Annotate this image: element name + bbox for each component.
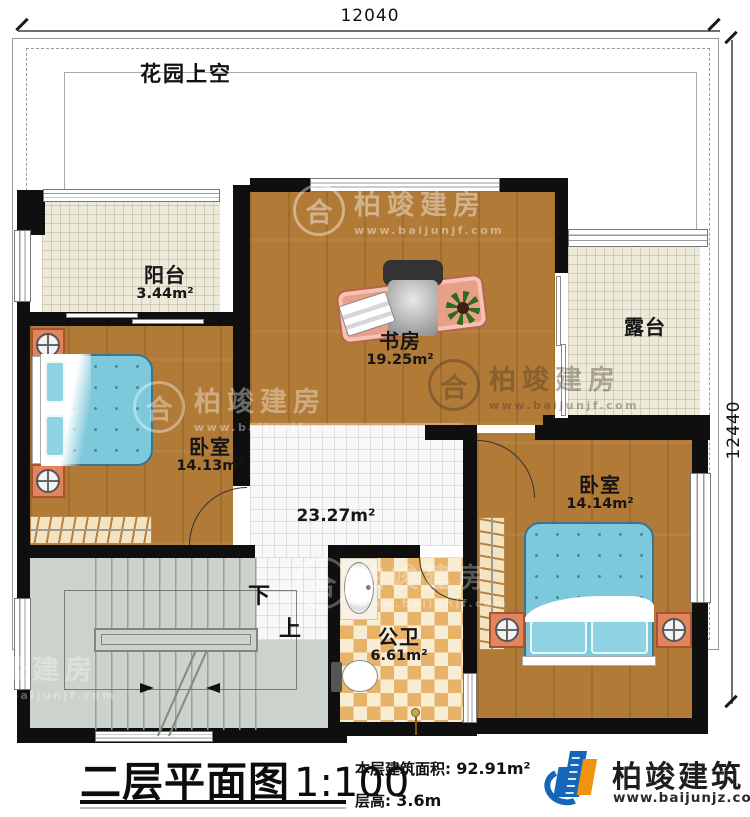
lamp-icon (36, 469, 60, 493)
room-name: 卧室 (535, 474, 665, 496)
lamp-icon (662, 618, 686, 642)
room-area: 14.13m² (150, 458, 270, 474)
floor-height-value: 3.6m (396, 791, 441, 810)
floor-height-label: 层高: (355, 792, 391, 810)
wall-bedroom-right-south (463, 718, 708, 734)
nightstand (489, 612, 525, 648)
bedroom-left-label: 卧室 14.13m² (150, 436, 270, 475)
nightstand (656, 612, 692, 648)
hall-floor (250, 425, 463, 558)
balcony-west-window (14, 230, 31, 302)
wall-bedroom-right-north (535, 425, 710, 440)
desk-chair-seat (388, 280, 438, 336)
faucet-dot (366, 585, 371, 590)
room-area: 14.14m² (535, 496, 665, 512)
nightstand (31, 464, 65, 498)
balcony-label: 阳台 3.44m² (95, 264, 235, 303)
wall-bathroom-south (328, 722, 477, 736)
room-name: 卧室 (150, 436, 270, 458)
floor-drain-stem (415, 717, 417, 735)
title-underline (80, 800, 346, 804)
room-area: 23.27m² (266, 507, 406, 526)
brand-logo-icon (548, 747, 606, 809)
pillow (45, 361, 65, 403)
wall-bedroom-right-east-top (692, 425, 708, 473)
wall-bedroom-right-east-bottom (692, 603, 708, 733)
wardrobe (30, 516, 152, 544)
pillow (530, 620, 587, 654)
wall-study-east (555, 185, 568, 273)
wall-balcony-nw (17, 190, 45, 235)
dimension-line-right (731, 40, 733, 704)
floor-drain-icon (411, 708, 420, 717)
plant-pot (457, 302, 469, 314)
pillow (45, 415, 65, 457)
wall-hall-bedroom (425, 425, 477, 440)
room-name: 阳台 (95, 264, 235, 286)
stairs-up-label: 上 (279, 611, 301, 643)
toilet-tank (331, 662, 342, 692)
toilet-icon (342, 660, 378, 692)
study-north-window (310, 178, 500, 192)
bathroom-label: 公卫 6.61m² (336, 626, 462, 665)
bottom-window (95, 731, 213, 742)
room-area: 3.44m² (95, 286, 235, 302)
bedroom-right-east-window (690, 473, 711, 603)
dimension-top-value: 12040 (325, 6, 415, 26)
brand-website: www.baijunjz.com (613, 790, 750, 806)
terrace-north-lintel (568, 229, 708, 247)
terrace-label: 露台 (585, 316, 705, 338)
dimension-line-top (18, 30, 720, 32)
stairs-west-window (14, 598, 31, 690)
room-name: 公卫 (336, 626, 462, 648)
floor-area-label: 本层建筑面积: (355, 760, 451, 778)
door-gap-bathroom (420, 546, 463, 557)
floor-area-info: 本层建筑面积: 92.91m² (355, 758, 531, 779)
wall-bathroom-north (328, 545, 420, 558)
terrace-sliding-door (561, 344, 566, 416)
floor-area-value: 92.91m² (456, 759, 530, 778)
room-area: 19.25m² (330, 352, 470, 368)
plant-icon (446, 291, 480, 325)
floor-height-info: 层高: 3.6m (355, 790, 441, 811)
wall-bedroom-right-west (463, 440, 477, 673)
wall-stairs-north (30, 545, 255, 558)
balcony-sliding-door (132, 319, 204, 324)
dimension-right-value: 12440 (724, 385, 744, 475)
study-label: 书房 19.25m² (330, 330, 470, 369)
balcony-sliding-door (66, 313, 138, 318)
room-name: 书房 (330, 330, 470, 352)
hall-label: 23.27m² (266, 507, 406, 526)
pillow (591, 620, 648, 654)
garden-label: 花园上空 (140, 58, 232, 88)
room-name: 露台 (585, 316, 705, 338)
stair-direction-arrow-icon (140, 683, 154, 693)
bed-headboard (522, 656, 656, 666)
bedroom-right-west-window (463, 673, 477, 723)
title-underline-thin (80, 807, 346, 809)
bed-headboard (32, 356, 41, 464)
stair-direction-arrow-icon (206, 683, 220, 693)
terrace-sliding-door (556, 276, 561, 346)
room-area: 6.61m² (336, 648, 462, 664)
stairs-down-label: 下 (248, 578, 270, 610)
floor-plan-canvas: 花园上空 12040 12440 (0, 0, 750, 817)
bedroom-right-label: 卧室 14.14m² (535, 474, 665, 513)
lamp-icon (495, 618, 519, 642)
balcony-north-window (43, 189, 220, 202)
plan-title-text: 二层平面图 (80, 748, 290, 808)
